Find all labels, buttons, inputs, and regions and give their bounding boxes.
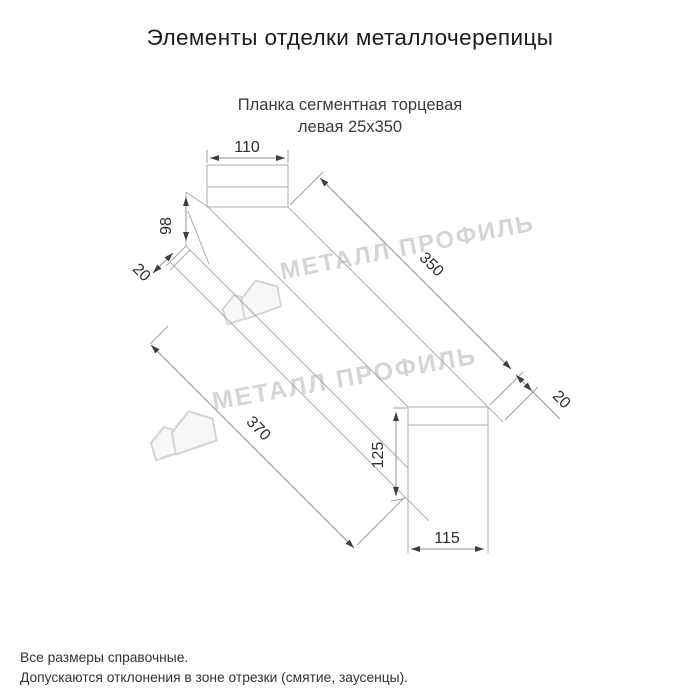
technical-drawing: МЕТАЛЛ ПРОФИЛЬ МЕТАЛЛ ПРОФИЛЬ [0,0,700,700]
watermark-upper: МЕТАЛЛ ПРОФИЛЬ [215,210,542,326]
metal-profil-logo-icon [218,277,282,325]
dimension-label-115: 115 [434,530,460,547]
footer-note-line1: Все размеры справочные. [20,648,408,668]
dimension-left-hem: 20 [129,253,173,285]
watermark-lower: МЕТАЛЛ ПРОФИЛЬ [143,342,485,461]
dimension-length-top: 350 [320,178,511,369]
footer-note-line2: Допускаются отклонения в зоне отрезки (с… [20,668,408,688]
metal-profil-logo-icon [147,408,218,461]
dimension-left-face: 98 [158,197,186,241]
dimension-label-110: 110 [234,139,260,156]
dimension-label-20-left: 20 [129,261,154,286]
dimension-bottom-width: 115 [411,530,484,549]
dimension-label-125: 125 [370,442,387,469]
page: Элементы отделки металлочерепицы Планка … [0,0,700,700]
dimension-label-98: 98 [158,217,175,235]
dimension-extension-lines [150,150,538,545]
dimension-label-20-right: 20 [549,388,574,413]
top-end-section [207,165,288,207]
dimension-label-370: 370 [243,413,274,444]
dimension-top-width: 110 [210,139,285,158]
footer-notes: Все размеры справочные. Допускаются откл… [20,648,408,688]
watermark-text: МЕТАЛЛ ПРОФИЛЬ [278,210,537,286]
dimension-right-hem: 20 [516,375,574,419]
